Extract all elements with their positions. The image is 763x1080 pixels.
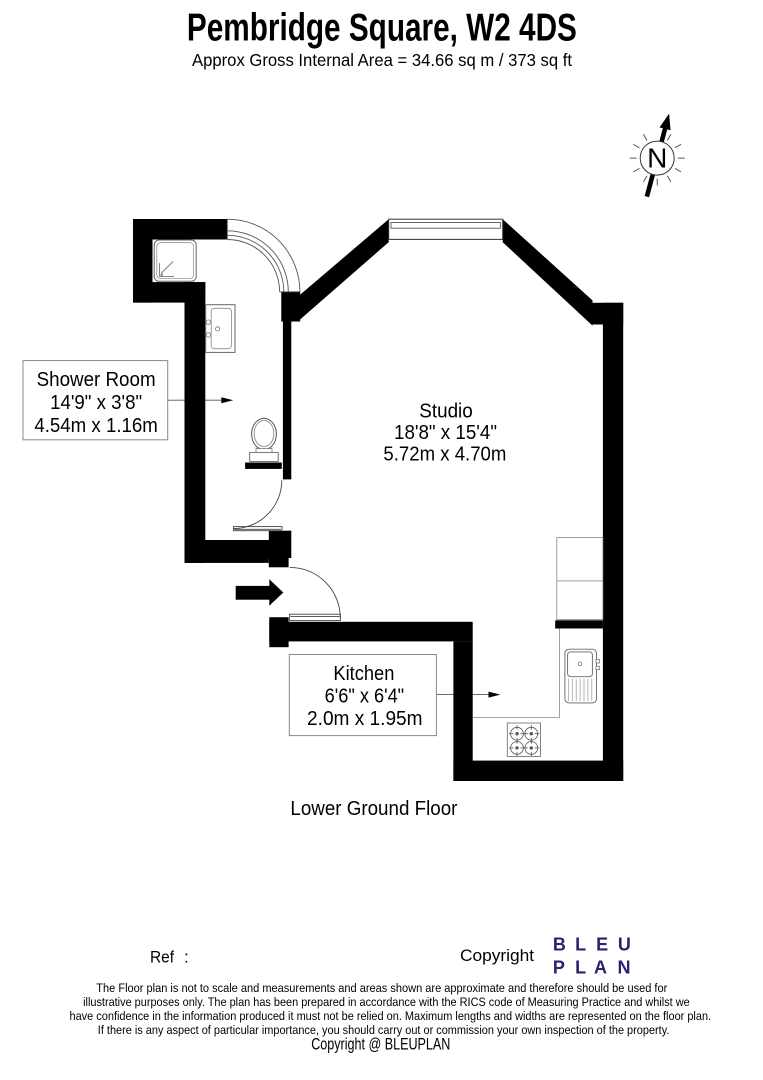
svg-text:P: P [553,958,565,978]
svg-text:N: N [647,142,667,173]
svg-text:Studio: Studio [419,401,473,423]
svg-text:A: A [594,958,607,978]
svg-text:L: L [575,935,586,955]
svg-text:Shower Room: Shower Room [37,369,156,391]
svg-text:Copyright: Copyright [460,947,534,965]
svg-text:L: L [575,958,586,978]
svg-text:2.0m x 1.95m: 2.0m x 1.95m [307,708,423,730]
svg-text:have confidence in the informa: have confidence in the information produ… [70,1009,712,1023]
svg-text::: : [184,947,189,966]
svg-text:5.72m x 4.70m: 5.72m x 4.70m [383,444,506,466]
svg-text:Pembridge Square, W2 4DS: Pembridge Square, W2 4DS [187,7,577,50]
svg-text:B: B [553,935,566,955]
svg-text:4.54m x 1.16m: 4.54m x 1.16m [34,415,158,437]
svg-text:Copyright @ BLEUPLAN: Copyright @ BLEUPLAN [311,1036,450,1054]
svg-text:Ref: Ref [150,947,174,966]
svg-text:Approx Gross Internal Area = 3: Approx Gross Internal Area = 34.66 sq m … [192,50,572,70]
svg-text:The Floor plan is not to scale: The Floor plan is not to scale and measu… [96,981,667,995]
svg-text:18'8" x 15'4": 18'8" x 15'4" [394,422,497,444]
svg-text:If there is any aspect of part: If there is any aspect of particular imp… [98,1023,670,1037]
svg-text:14'9" x 3'8": 14'9" x 3'8" [50,392,142,414]
svg-text:Kitchen: Kitchen [333,663,394,685]
svg-text:E: E [596,935,608,955]
svg-text:N: N [618,958,631,978]
svg-text:illustrative purposes only. Th: illustrative purposes only. The plan has… [83,995,690,1009]
svg-text:U: U [618,935,631,955]
svg-text:Lower Ground Floor: Lower Ground Floor [290,797,457,820]
svg-text:6'6" x 6'4": 6'6" x 6'4" [325,685,405,707]
